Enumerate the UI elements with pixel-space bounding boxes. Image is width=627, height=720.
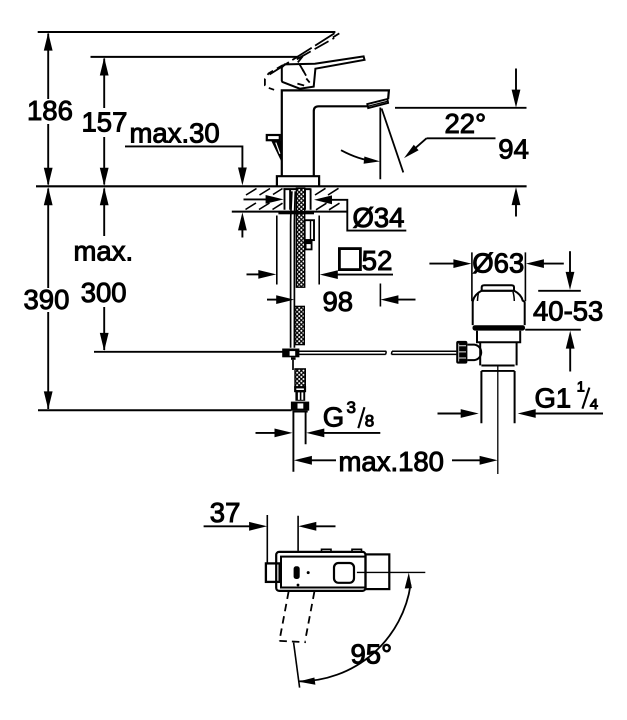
svg-text:94: 94 <box>498 134 529 165</box>
svg-text:Ø34: Ø34 <box>353 202 405 233</box>
svg-text:157: 157 <box>82 107 128 138</box>
svg-text:max.180: max.180 <box>339 446 444 477</box>
svg-text:4: 4 <box>590 396 598 413</box>
svg-text:G: G <box>323 402 344 433</box>
svg-text:max.: max. <box>74 236 134 267</box>
svg-text:186: 186 <box>27 95 73 126</box>
svg-text:1: 1 <box>577 380 585 396</box>
svg-text:Ø63: Ø63 <box>472 248 524 279</box>
svg-text:37: 37 <box>210 497 241 528</box>
svg-text:40-53: 40-53 <box>533 295 603 326</box>
svg-text:300: 300 <box>81 277 127 308</box>
svg-text:G1: G1 <box>535 383 572 414</box>
svg-text:95°: 95° <box>351 639 393 670</box>
svg-text:8: 8 <box>365 412 374 431</box>
svg-text:390: 390 <box>24 284 70 315</box>
svg-text:98: 98 <box>323 286 354 317</box>
svg-text:max.30: max.30 <box>130 118 220 149</box>
svg-text:22°: 22° <box>445 108 487 139</box>
svg-text:52: 52 <box>362 245 393 276</box>
svg-text:3: 3 <box>347 398 356 417</box>
